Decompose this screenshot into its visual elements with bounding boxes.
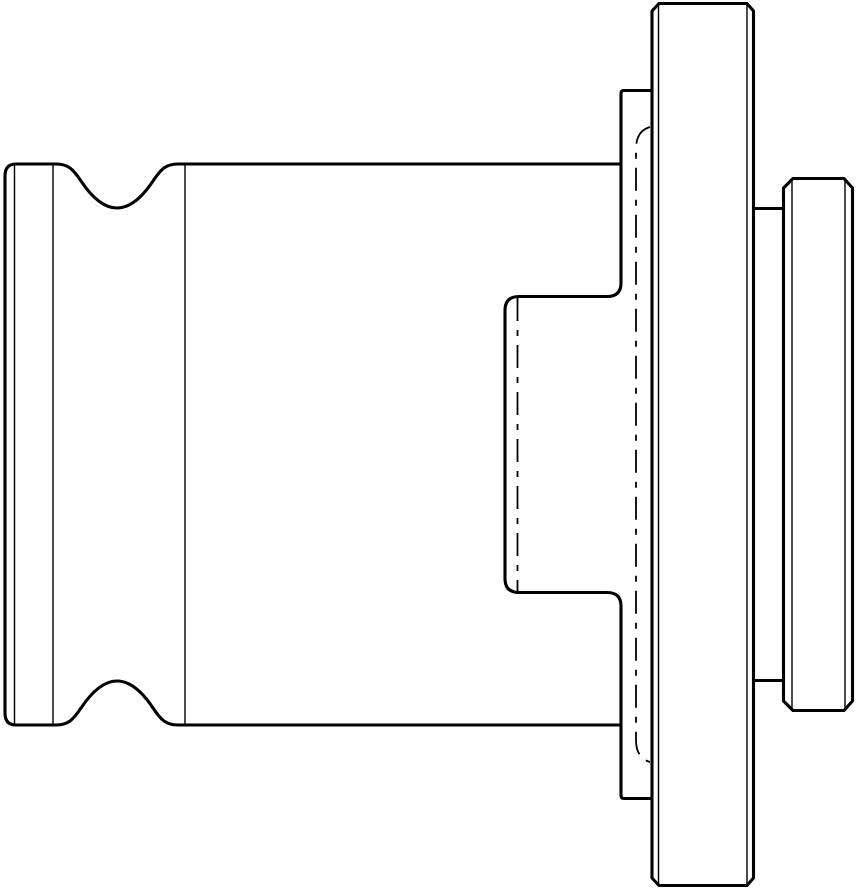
pilot-chamfer-edge-lines — [792, 180, 845, 709]
hub-and-pocket-outline — [505, 91, 652, 799]
pilot-outline — [784, 179, 853, 711]
technical-drawing — [0, 0, 859, 889]
flange-outline — [652, 4, 754, 886]
flange-chamfer-edge-lines — [659, 5, 748, 884]
bore-hidden-line — [636, 127, 650, 762]
body-top-edge — [16, 164, 621, 208]
body-bottom-edge — [16, 681, 621, 725]
flange-pilot-step-lines — [754, 209, 784, 681]
drawing-canvas — [0, 0, 859, 889]
